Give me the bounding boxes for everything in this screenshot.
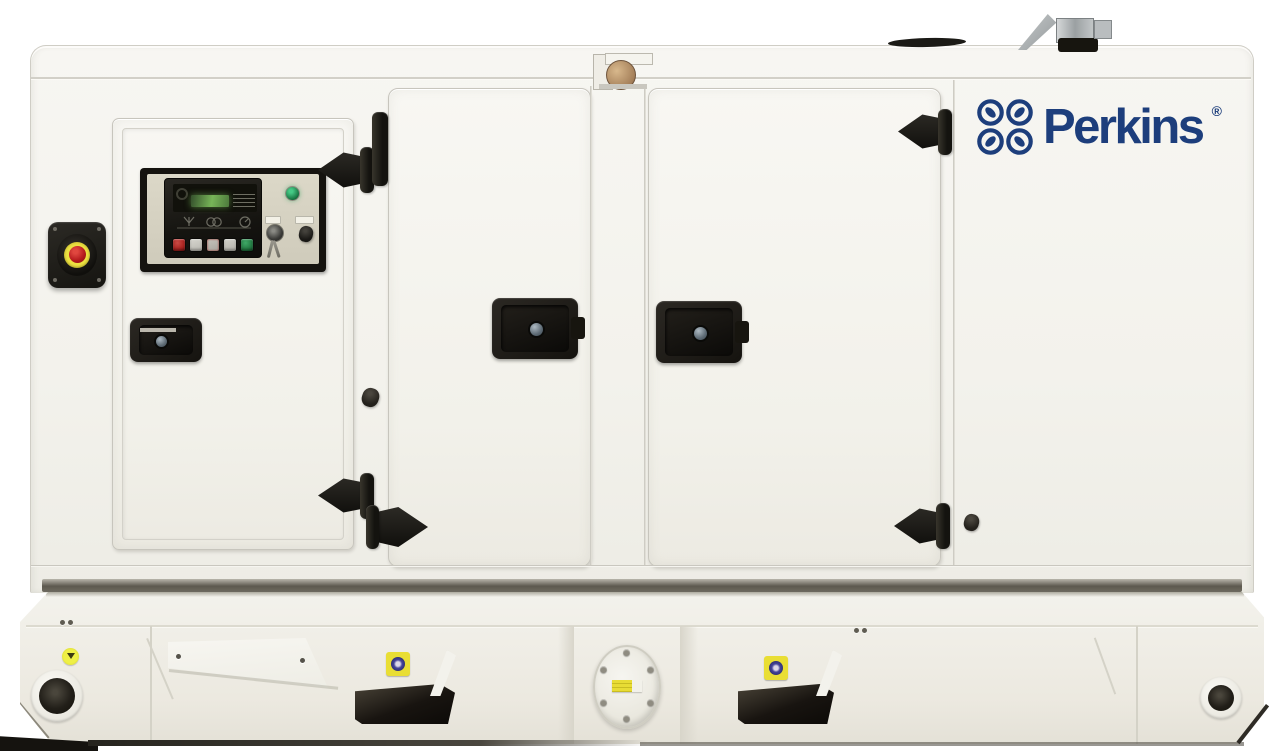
controller-round-icon bbox=[176, 188, 188, 200]
lifting-hole-left bbox=[39, 678, 75, 714]
alarm-button bbox=[206, 238, 220, 252]
screw-icon bbox=[300, 658, 305, 663]
warning-sticker bbox=[764, 656, 788, 680]
genset-controller bbox=[164, 178, 262, 258]
control-panel-window bbox=[140, 168, 326, 272]
hanging-key-icon bbox=[272, 240, 280, 258]
controller-led-legend bbox=[233, 194, 255, 208]
handle-notch bbox=[735, 321, 749, 343]
hinge-knuckle bbox=[936, 503, 950, 549]
exhaust-pipe bbox=[1058, 38, 1098, 52]
screw-icon bbox=[176, 654, 181, 659]
screw-icon bbox=[53, 227, 57, 231]
flange-bolt-icon bbox=[623, 649, 630, 656]
base-rail-seam bbox=[26, 625, 1258, 627]
fuel-flange-access-plate bbox=[593, 645, 661, 729]
handle-lock-button bbox=[528, 321, 545, 338]
flange-bolt-icon bbox=[623, 715, 630, 722]
door-handle-left bbox=[492, 298, 578, 359]
control-door-latch bbox=[130, 318, 202, 362]
rotary-knob bbox=[297, 225, 314, 244]
knob-label bbox=[295, 216, 314, 224]
flange-bolt-icon bbox=[647, 699, 654, 706]
pillar-seam-right bbox=[644, 86, 646, 566]
base-divider-seam bbox=[1136, 626, 1138, 744]
bolt-pair bbox=[854, 628, 867, 633]
recess-shading bbox=[558, 626, 574, 744]
green-indicator-lamp bbox=[285, 186, 300, 201]
flange-bolt-icon bbox=[600, 666, 607, 673]
estop-red-mushroom bbox=[69, 246, 86, 263]
screw-icon bbox=[97, 227, 101, 231]
exhaust-outlet bbox=[1018, 8, 1112, 52]
flange-warning-label bbox=[612, 680, 642, 692]
menu-button-2 bbox=[223, 238, 237, 252]
base-frame-fuel-tank bbox=[18, 592, 1264, 744]
recess-shading bbox=[680, 626, 698, 744]
pocket-gusset bbox=[430, 650, 456, 696]
brand-wordmark: Perkins bbox=[1043, 103, 1203, 152]
step-plate bbox=[168, 638, 328, 688]
canopy-skirt-seam bbox=[31, 565, 1251, 566]
warning-sticker bbox=[386, 652, 410, 676]
stop-button bbox=[172, 238, 186, 252]
control-panel-plate bbox=[147, 174, 319, 264]
controller-button-row bbox=[172, 238, 256, 252]
base-top-shadow bbox=[46, 592, 1244, 597]
hinge-knuckle bbox=[938, 109, 952, 155]
controller-lcd-display bbox=[191, 195, 229, 207]
ground-shadow bbox=[640, 742, 1244, 746]
pocket-gusset bbox=[816, 650, 842, 696]
screw-icon bbox=[53, 278, 57, 282]
handle-lock-button bbox=[692, 325, 709, 342]
flange-bolt-icon bbox=[600, 699, 607, 706]
key-switch bbox=[266, 224, 284, 242]
hinge-knuckle bbox=[372, 112, 388, 186]
end-panel-seam bbox=[953, 80, 955, 567]
gusset-seam bbox=[1094, 637, 1116, 694]
canopy-underside-shadow bbox=[42, 579, 1242, 592]
lifting-hole-right bbox=[1208, 685, 1234, 711]
latch-highlight bbox=[140, 328, 176, 332]
latch-lock-button bbox=[154, 334, 169, 349]
perkins-emblem-icon bbox=[976, 98, 1034, 156]
bracket-base bbox=[599, 84, 647, 89]
controller-mimic-icons bbox=[171, 215, 255, 231]
generator-product-photo: Perkins ® bbox=[0, 0, 1280, 751]
pillar-seam-left bbox=[590, 86, 592, 566]
bolt-pair bbox=[60, 620, 73, 625]
lifting-bracket bbox=[593, 40, 653, 90]
screw-icon bbox=[97, 278, 101, 282]
perkins-logo: Perkins ® bbox=[976, 94, 1236, 160]
flange-bolt-icon bbox=[647, 666, 654, 673]
ground-shadow bbox=[88, 740, 648, 746]
key-switch-label bbox=[265, 216, 281, 224]
emergency-stop-button bbox=[48, 222, 106, 288]
start-button bbox=[240, 238, 254, 252]
lifting-point-sticker bbox=[62, 648, 79, 665]
handle-notch bbox=[571, 317, 585, 339]
menu-button-1 bbox=[189, 238, 203, 252]
registered-trademark: ® bbox=[1212, 103, 1222, 119]
door-handle-right bbox=[656, 301, 742, 363]
exhaust-clamp bbox=[1094, 20, 1112, 39]
base-divider-seam bbox=[150, 626, 152, 744]
hinge-knuckle bbox=[366, 505, 379, 549]
